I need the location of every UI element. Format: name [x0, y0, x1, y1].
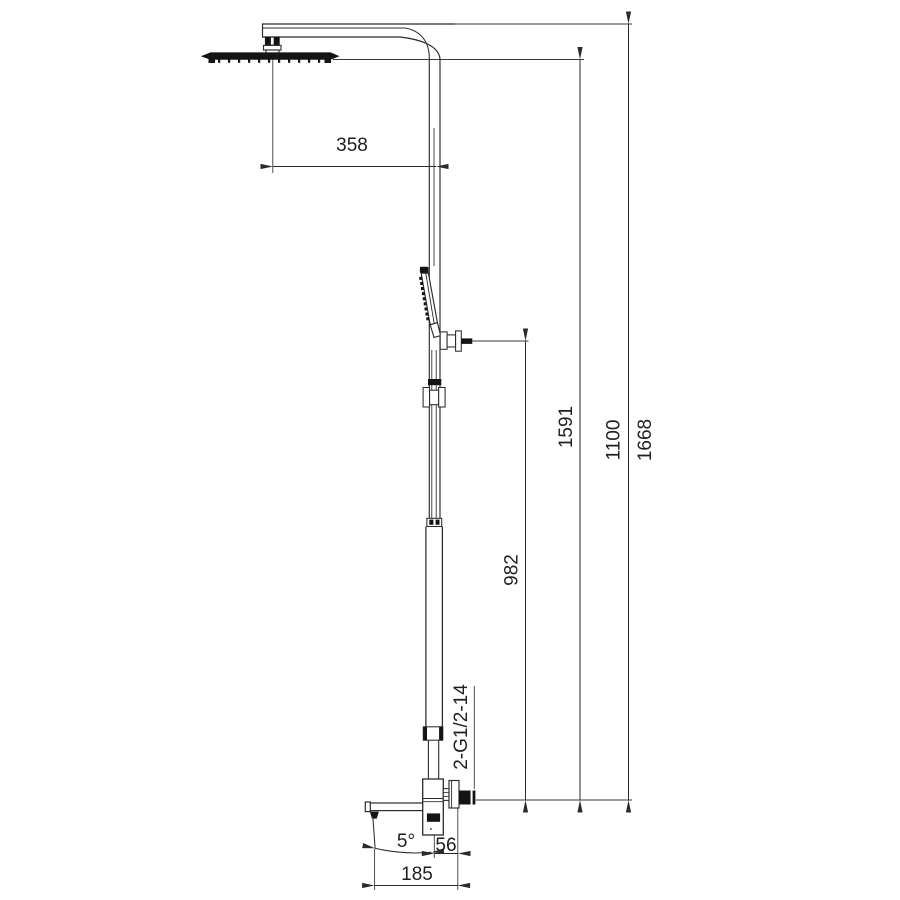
handle-flange [449, 781, 459, 809]
dim-label-185: 185 [401, 864, 433, 885]
slide-bracket [423, 379, 445, 407]
wall-outlet-stub [459, 791, 475, 805]
tub-spout [366, 803, 424, 811]
dim-label-1591: 1591 [556, 406, 577, 448]
arm-bend-outer [400, 37, 440, 60]
dim-label-358: 358 [336, 135, 368, 156]
wand-handle [430, 323, 440, 338]
dimension-labels: 358 982 1591 1100 1668 2-G1/2-14 5° 56 1… [336, 135, 656, 885]
head-ball-joint [264, 37, 282, 54]
mixer-handle [443, 781, 459, 809]
spout-tilt-line [373, 816, 375, 849]
dim-label-56: 56 [435, 835, 456, 856]
dim-label-1668: 1668 [635, 419, 656, 461]
spout-aerator [370, 812, 379, 819]
technical-drawing: 358 982 1591 1100 1668 2-G1/2-14 5° 56 1… [0, 0, 900, 900]
dim-label-982: 982 [502, 554, 523, 586]
label-thread-spec: 2-G1/2-14 [451, 684, 472, 770]
wand-cap [420, 267, 429, 273]
mixer-body [423, 779, 444, 835]
mixer-valve [365, 779, 475, 835]
hand-shower [419, 267, 472, 407]
rain-head-plate [202, 53, 339, 60]
wand-holder [440, 331, 472, 351]
rain-shower-head [202, 37, 339, 63]
holder-stub [461, 338, 472, 344]
drawing-canvas: 358 982 1591 1100 1668 2-G1/2-14 5° 56 1… [0, 0, 900, 900]
spout-end-cap [365, 802, 370, 812]
dim-label-5deg: 5° [397, 831, 415, 852]
dim-label-1100: 1100 [604, 420, 625, 461]
